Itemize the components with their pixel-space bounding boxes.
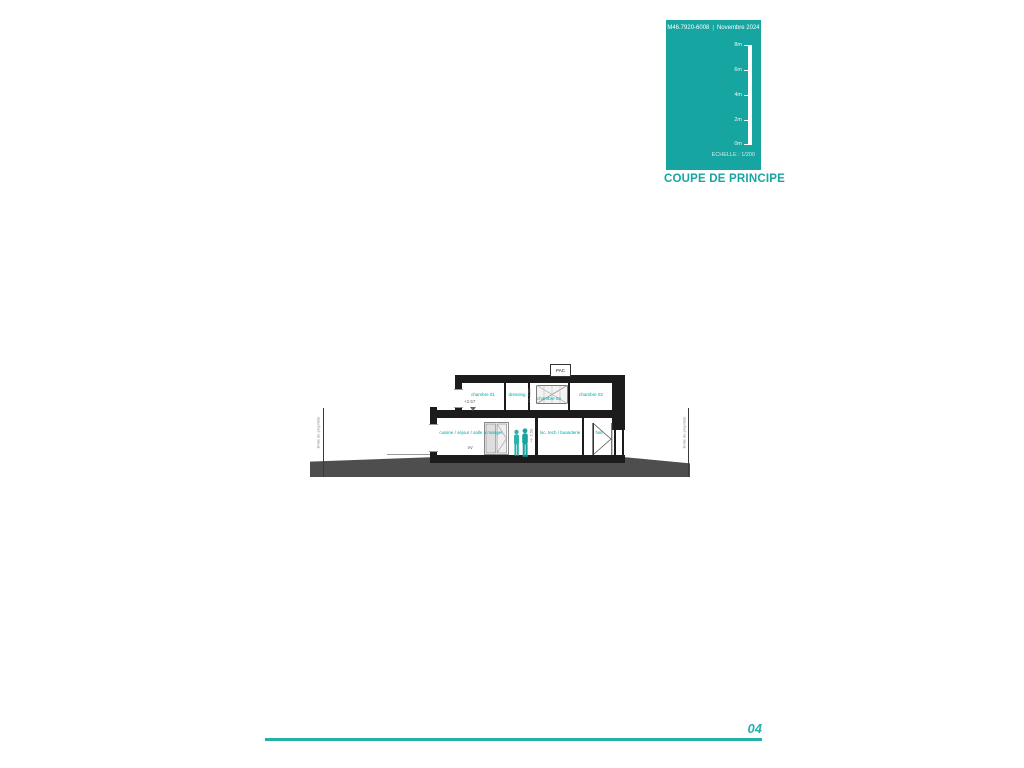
roof-slab [455,375,625,383]
scale-tick-6m [744,70,748,71]
scale-tick-0m [744,144,748,145]
property-limit-label-right: limite de propriété [682,405,687,461]
page-number: 04 [726,721,762,736]
ground-wall-right-outer [622,418,624,455]
terrace-line [387,454,430,455]
room-label-hall: hall [584,430,614,435]
property-limit-line-left [323,408,324,477]
property-limit-label-left: limite de propriété [316,405,321,461]
header-separator: | [712,25,714,31]
fixture-symbol: ∨∨ [467,445,472,451]
footer-accent-line [265,738,762,741]
heat-pump-unit: PAC [550,364,571,377]
scale-label: ECHELLE : 1/200 [712,152,755,158]
level-marker-icon [470,407,476,411]
scale-tick-8m [744,45,748,46]
hall-door [592,423,613,455]
sheet-title: COUPE DE PRINCIPE [664,173,762,185]
hall-door-drawing [592,423,613,455]
scale-tick-label: 0m [704,141,742,147]
scale-tick-label: 8m [704,42,742,48]
property-limit-line-right [688,408,689,477]
drawing-sheet: M46.7920-6008 | Novembre 2024 8m 6m 4m 2… [0,0,1024,768]
scale-bar [748,45,752,145]
ground-partition-1 [535,418,538,455]
scale-tick-label: 6m [704,67,742,73]
room-label-dressing: dressing [506,392,528,397]
ground-partition-2 [582,418,584,455]
room-label-cuisine-sejour: cuisine / séjour / salle à manger [436,430,506,435]
glazed-door-drawing [484,422,509,455]
project-reference: M46.7920-6008 [667,25,709,31]
scale-tick-label: 4m [704,92,742,98]
scale-tick-2m [744,120,748,121]
upper-height-dimension: +/- 2.50 [527,385,532,407]
heat-pump-label: PAC [556,368,565,373]
room-label-chambre-02: chambre 02 [570,392,612,397]
glazed-door [484,422,509,455]
room-label-chambre-03: chambre 03 [530,396,568,401]
level-marker-value: +2.57 [464,399,475,404]
stair-section [536,385,568,404]
room-label-chambre-01: chambre 01 [462,392,504,397]
ground-height-dimension: +/- 2.50 [529,425,534,447]
title-block: M46.7920-6008 | Novembre 2024 8m 6m 4m 2… [666,20,761,170]
ground-wall-right-inner [614,418,616,455]
stair-drawing [536,385,568,404]
scale-tick-label: 2m [704,117,742,123]
title-block-header: M46.7920-6008 | Novembre 2024 [666,22,761,34]
issue-date: Novembre 2024 [717,25,760,31]
scale-tick-4m [744,95,748,96]
room-label-loc-tech: loc. tech / buanderie [538,430,582,435]
ground-left-window [429,424,438,452]
